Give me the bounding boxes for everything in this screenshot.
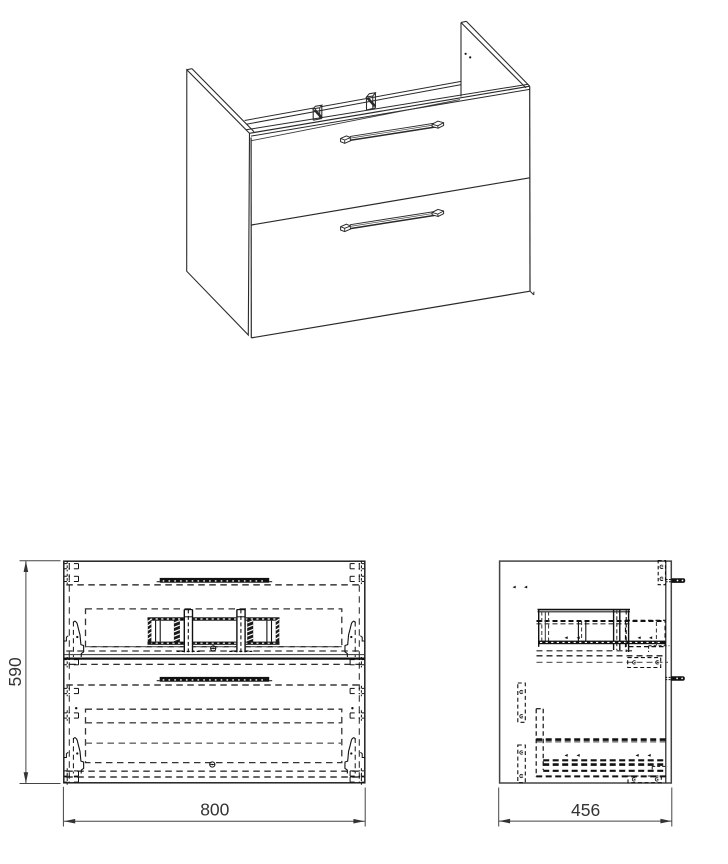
svg-text:456: 456 xyxy=(571,800,600,820)
svg-text:590: 590 xyxy=(5,657,25,686)
svg-text:800: 800 xyxy=(200,800,229,820)
